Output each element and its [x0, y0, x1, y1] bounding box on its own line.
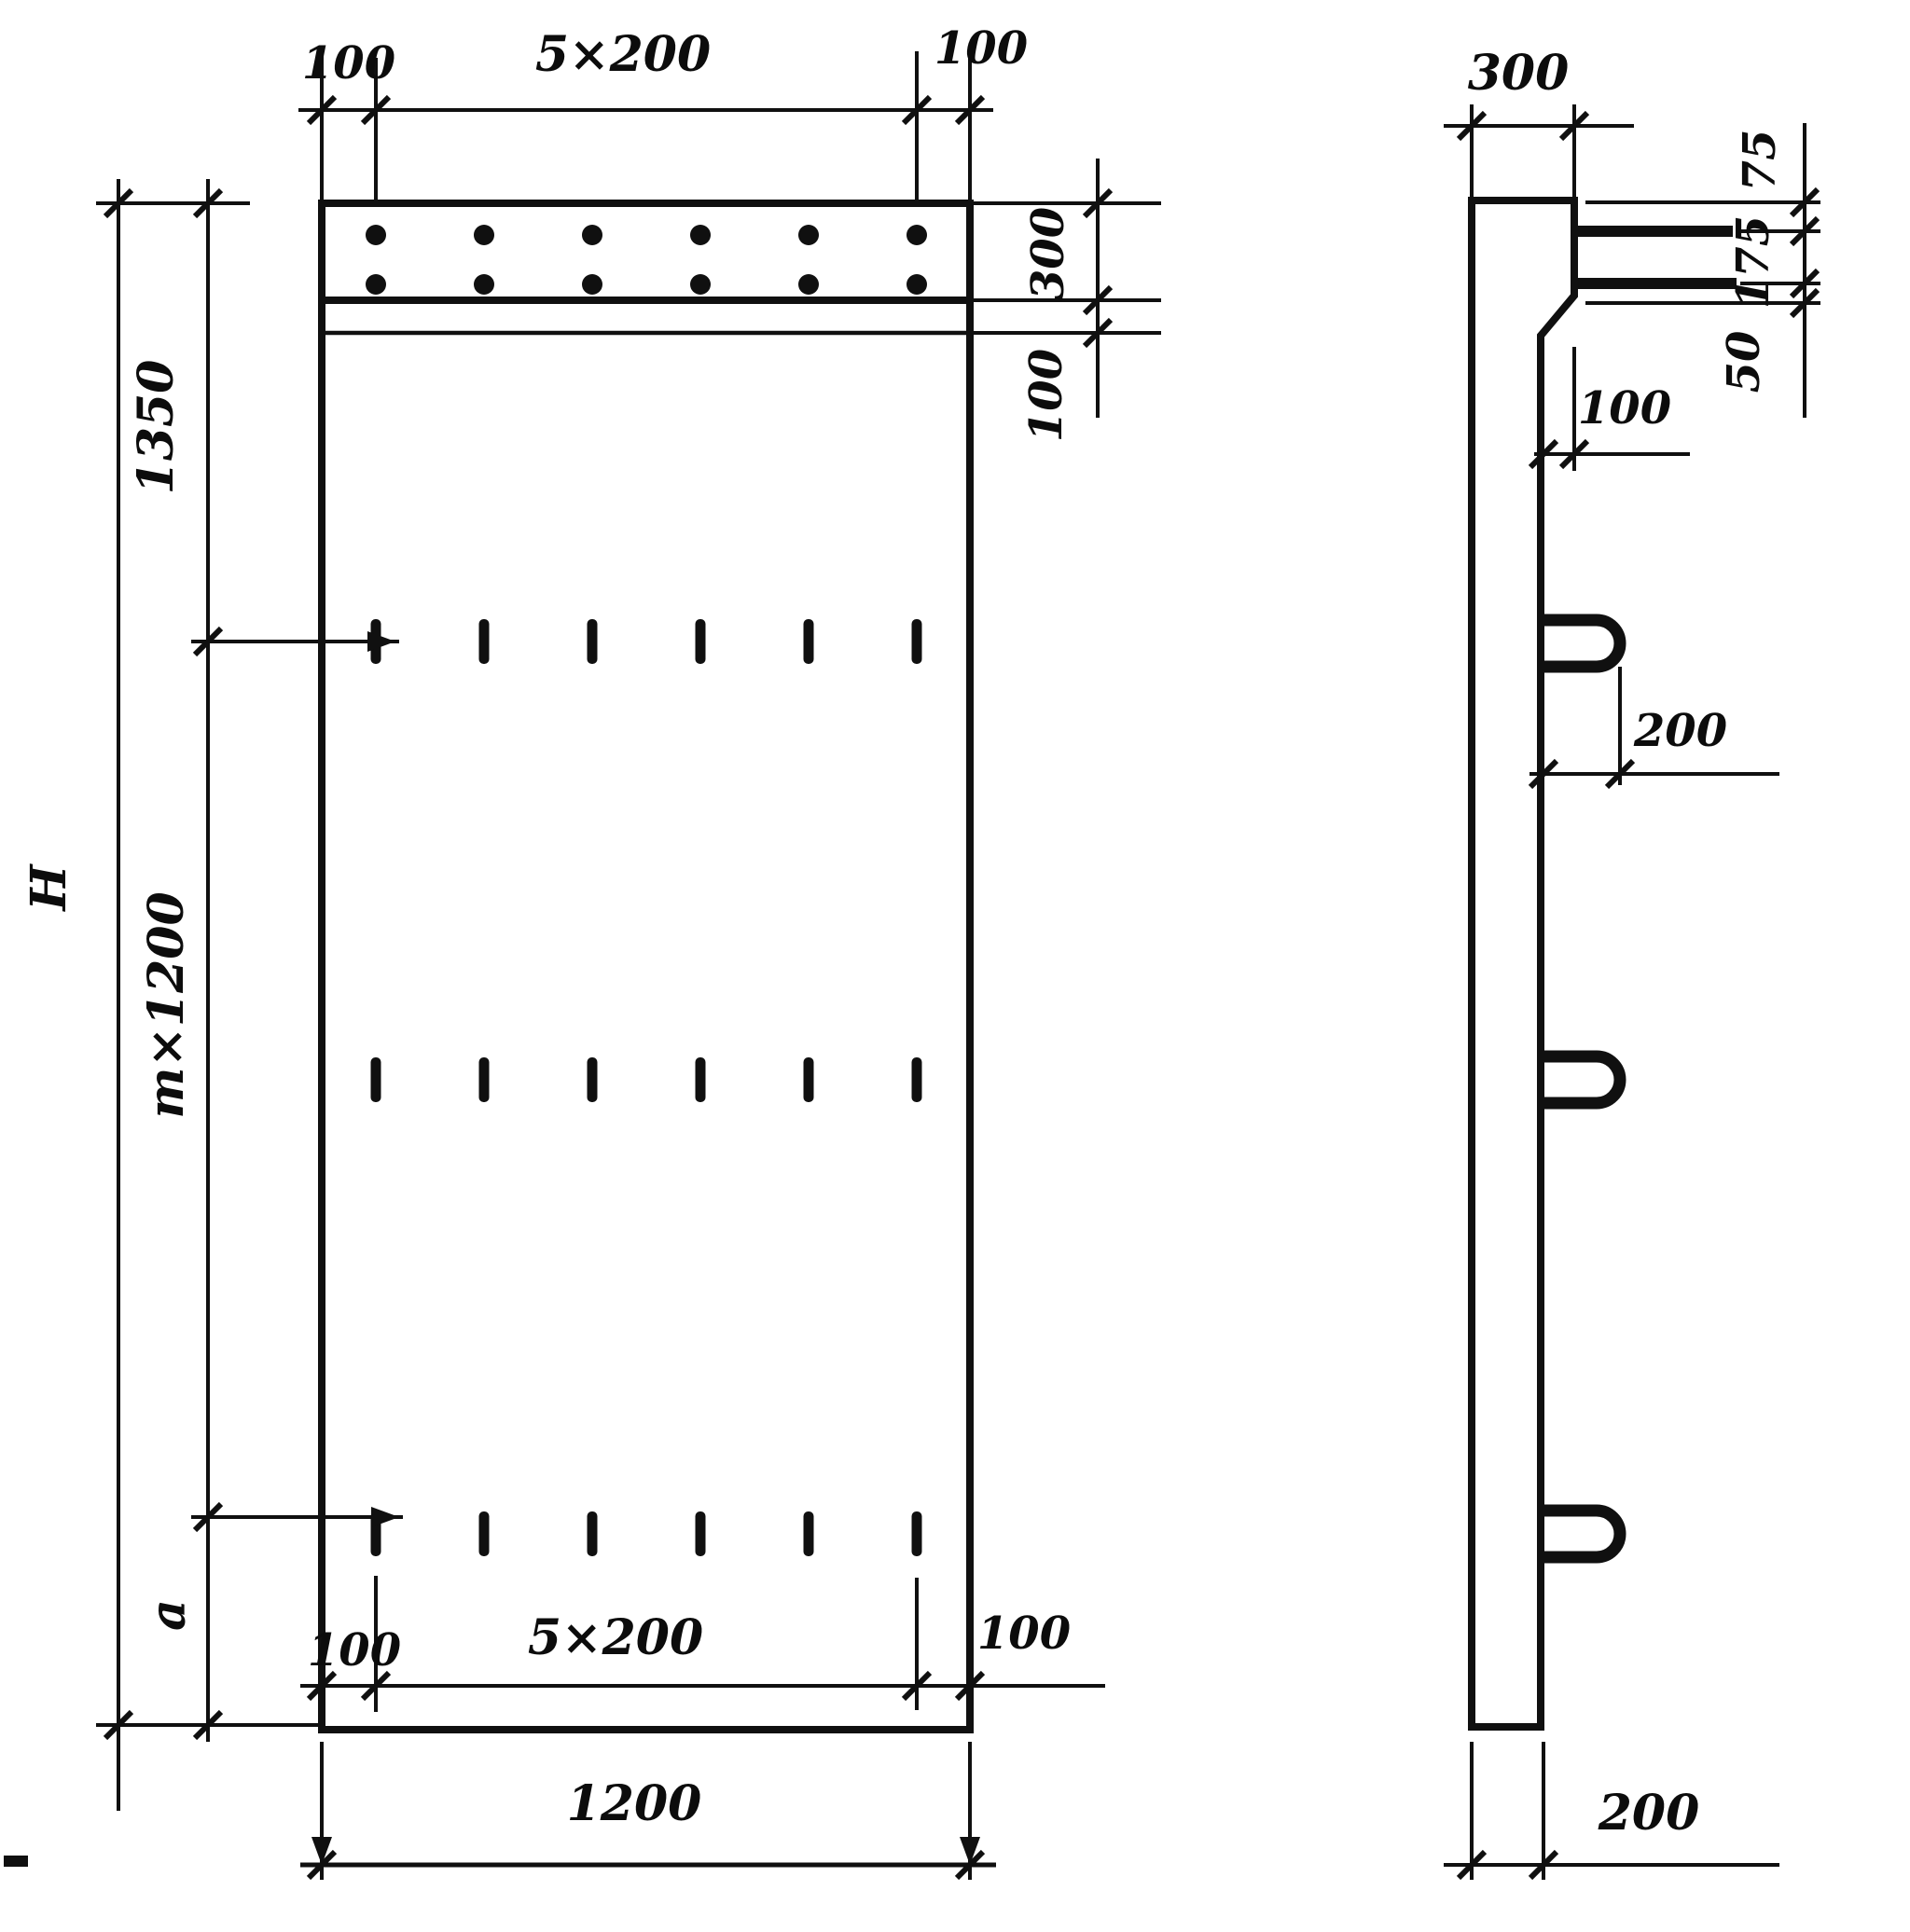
side-ledge-dimension: 100	[1534, 347, 1690, 471]
front-right-dimension: 300 100	[970, 159, 1161, 442]
dim-1200: 1200	[567, 1775, 702, 1832]
front-panel-outline	[322, 203, 970, 1730]
loop-mark	[696, 1057, 706, 1102]
front-left-dimension: 1350 m×1200 a H	[21, 179, 403, 1811]
dim-side-300: 300	[1468, 45, 1570, 102]
front-inner-bottom-dimension: 100 5×200 100	[300, 1576, 1105, 1712]
side-bottom-dimension: 200	[1444, 1742, 1779, 1880]
anchor-dot	[798, 274, 819, 295]
dim-side-bottom-200: 200	[1598, 1785, 1700, 1842]
front-top-dimension: 100 5×200 100	[298, 22, 1028, 205]
loop-mark	[479, 619, 490, 664]
loop-mark	[588, 1057, 598, 1102]
anchor-dot	[690, 274, 711, 295]
dim-bottom-left-100: 100	[308, 1624, 401, 1677]
dim-bottom-5x200: 5×200	[528, 1609, 703, 1666]
side-panel-outline	[1472, 200, 1574, 1727]
anchor-dot	[366, 225, 386, 245]
front-width-dimension: 1200	[300, 1742, 996, 1880]
dimension-ticks	[105, 97, 1818, 1878]
dim-top-5x200: 5×200	[535, 26, 711, 83]
loop-mark	[588, 619, 598, 664]
dim-50: 50	[1718, 331, 1770, 393]
arrowhead-right	[367, 631, 395, 652]
dim-loop-200: 200	[1633, 705, 1727, 757]
dim-band-300: 300	[1022, 207, 1074, 300]
loop-mark	[479, 1511, 490, 1556]
loop-mark	[804, 1057, 814, 1102]
lifting-loop	[1541, 620, 1620, 667]
side-loops	[1541, 620, 1620, 1557]
scan-artifact	[4, 1856, 28, 1867]
loop-mark	[912, 1511, 922, 1556]
dim-top-right-100: 100	[934, 22, 1028, 75]
loop-mark	[371, 1057, 381, 1102]
anchor-dot	[474, 225, 494, 245]
loop-mark	[912, 1057, 922, 1102]
side-view: 300 75 175 50 100 200	[1444, 45, 1820, 1880]
anchor-dot	[366, 274, 386, 295]
arrowhead-right	[371, 1507, 399, 1527]
anchor-dot	[798, 225, 819, 245]
dim-bottom-right-100: 100	[977, 1608, 1071, 1660]
loop-mark	[804, 619, 814, 664]
lifting-loop	[1541, 1511, 1620, 1557]
drawing-sheet: 100 5×200 100 300 100 1350 m×1200 a H	[0, 0, 1910, 1932]
side-top-dimension: 300	[1444, 45, 1634, 198]
dim-a: a	[140, 1599, 197, 1631]
anchor-dot	[907, 274, 927, 295]
dim-75: 75	[1734, 130, 1786, 192]
loop-mark	[696, 1511, 706, 1556]
dim-1350: 1350	[128, 360, 185, 495]
anchor-dot	[690, 225, 711, 245]
loop-mark	[804, 1511, 814, 1556]
loop-mark	[912, 619, 922, 664]
loop-mark	[479, 1057, 490, 1102]
dim-175: 175	[1727, 215, 1779, 309]
dim-strip-100: 100	[1020, 349, 1073, 442]
anchor-dot	[582, 225, 602, 245]
loop-mark-grid	[371, 619, 922, 1556]
lifting-loop	[1541, 1056, 1620, 1103]
dimension-arrows	[311, 631, 980, 1865]
dim-top-left-100: 100	[302, 37, 395, 90]
front-view: 100 5×200 100 300 100 1350 m×1200 a H	[21, 22, 1161, 1880]
dim-side-100: 100	[1578, 382, 1671, 435]
side-right-dimension: 75 175 50	[1585, 123, 1820, 418]
loop-mark	[588, 1511, 598, 1556]
anchor-dot	[474, 274, 494, 295]
panel-drawing: 100 5×200 100 300 100 1350 m×1200 a H	[0, 0, 1910, 1932]
anchor-dot-grid	[366, 225, 927, 295]
anchor-dot	[582, 274, 602, 295]
loop-mark	[696, 619, 706, 664]
side-loop-dimension: 200	[1529, 667, 1779, 785]
dim-H: H	[21, 863, 77, 913]
anchor-dot	[907, 225, 927, 245]
dim-mx1200: m×1200	[138, 891, 195, 1118]
